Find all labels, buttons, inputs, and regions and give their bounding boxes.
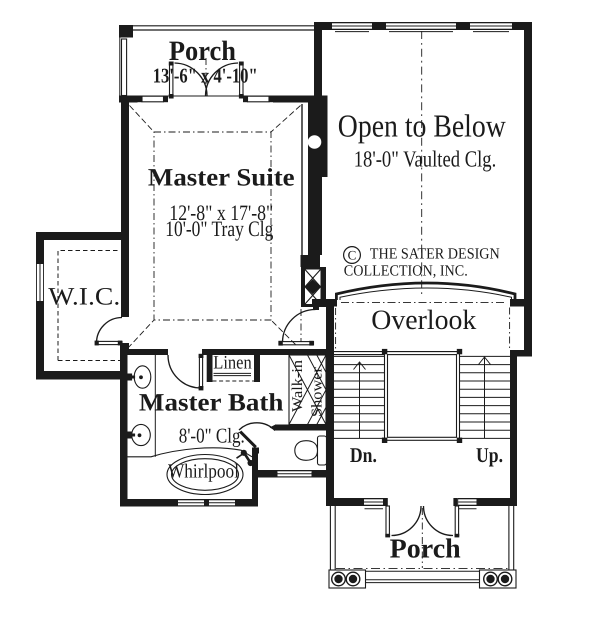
svg-text:13'-6" x 4'-10": 13'-6" x 4'-10" bbox=[153, 64, 258, 88]
svg-text:Master Bath: Master Bath bbox=[139, 390, 284, 417]
svg-text:Shower: Shower bbox=[310, 367, 326, 417]
svg-text:Walk-in: Walk-in bbox=[290, 359, 306, 412]
svg-text:Linen: Linen bbox=[213, 353, 252, 374]
svg-text:Master Suite: Master Suite bbox=[148, 164, 295, 191]
svg-text:18'-0" Vaulted Clg.: 18'-0" Vaulted Clg. bbox=[354, 147, 497, 172]
svg-text:COLLECTION, INC.: COLLECTION, INC. bbox=[344, 263, 468, 280]
svg-text:W.I.C.: W.I.C. bbox=[48, 284, 120, 311]
svg-text:10'-0" Tray Clg: 10'-0" Tray Clg bbox=[165, 216, 273, 241]
svg-text:Overlook: Overlook bbox=[371, 305, 476, 336]
svg-text:8'-0" Clg.: 8'-0" Clg. bbox=[179, 424, 245, 448]
svg-text:Open to Below: Open to Below bbox=[338, 107, 506, 143]
svg-text:Whirlpool: Whirlpool bbox=[168, 461, 239, 483]
svg-text:Dn.: Dn. bbox=[350, 443, 377, 467]
svg-text:Up.: Up. bbox=[476, 443, 503, 467]
svg-text:THE SATER DESIGN: THE SATER DESIGN bbox=[370, 246, 500, 263]
svg-text:Porch: Porch bbox=[390, 533, 461, 564]
svg-text:Porch: Porch bbox=[169, 36, 236, 67]
svg-text:C: C bbox=[348, 248, 357, 263]
